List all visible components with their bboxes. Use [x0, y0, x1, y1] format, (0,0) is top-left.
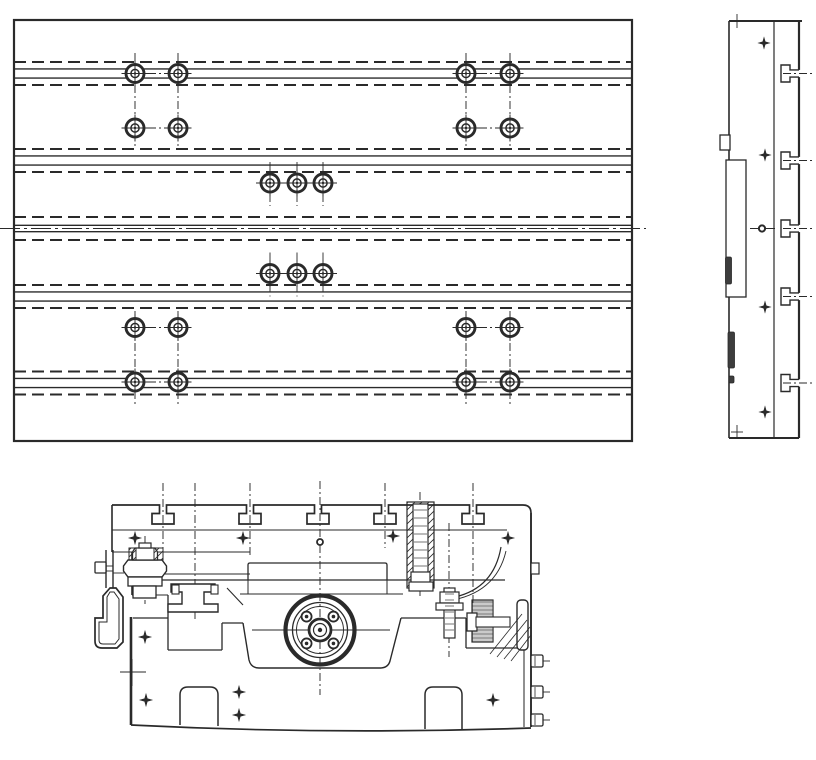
bolt-hole [122, 115, 149, 142]
bolt-hole [453, 115, 480, 142]
foot-notch-right [425, 687, 462, 729]
bolt-hole [497, 60, 524, 87]
clamp-nut-hex [124, 560, 167, 577]
side-gib-strip [729, 376, 734, 383]
flange-hub-dot [318, 628, 322, 632]
bolt-hole [453, 314, 480, 341]
apron-arc-outer [455, 547, 501, 597]
bolt-hole [453, 369, 480, 396]
center-hole [759, 225, 765, 231]
bolt-hole [497, 369, 524, 396]
bolt-hole [165, 314, 192, 341]
bolt-hole [497, 115, 524, 142]
section-bottom-edge [131, 725, 531, 731]
technical-drawing-page [0, 0, 816, 760]
bolt-hole [165, 115, 192, 142]
t-slot-band [14, 372, 632, 395]
bolt-hole [122, 369, 149, 396]
bolt-hole [257, 260, 284, 287]
hook-pin-head [95, 562, 106, 573]
h-bolt-shank [476, 617, 510, 627]
hatch-wedge-right [154, 548, 163, 560]
bolt-hole [122, 60, 149, 87]
bolt-hole [497, 314, 524, 341]
bolt-cap [139, 543, 151, 548]
vertical-bolt-washer [409, 582, 433, 591]
clamp-key-left [172, 585, 179, 594]
position-marker-icon [139, 631, 151, 643]
foot-notch-left [180, 687, 218, 726]
position-marker-icon [760, 407, 771, 418]
position-marker-icon [760, 150, 771, 161]
position-marker-icon [129, 532, 141, 544]
section-line [227, 588, 243, 605]
bolt-hole [284, 170, 311, 197]
edge-bolt [531, 714, 543, 726]
stud-washer [436, 603, 463, 610]
washer [128, 577, 162, 586]
side-gib-strip [726, 257, 732, 284]
bolt-hole [453, 60, 480, 87]
edge-bolt [531, 655, 543, 667]
section-front-view [95, 481, 550, 731]
stud-nut [440, 592, 459, 603]
edge-tab [531, 563, 539, 574]
raised-bar [248, 563, 387, 580]
position-marker-icon [233, 686, 245, 698]
position-marker-icon [759, 38, 770, 49]
position-marker-icon [233, 709, 245, 721]
bolt-hole [165, 60, 192, 87]
clamp-key-right [211, 585, 218, 594]
side-gib-strip [728, 332, 735, 368]
bolt-hole [122, 314, 149, 341]
bolt-hole [310, 260, 337, 287]
bolt-hole [257, 170, 284, 197]
small-center-hole [317, 539, 323, 545]
side-view [720, 14, 812, 439]
machine-table-drawing [0, 0, 816, 760]
bolt-hole [310, 170, 337, 197]
position-marker-icon [237, 532, 249, 544]
plan-view [0, 20, 646, 441]
bolt-hole [284, 260, 311, 287]
position-marker-icon [502, 532, 514, 544]
hatch-wedge-left [129, 548, 136, 560]
position-marker-icon [487, 694, 499, 706]
side-tab [720, 135, 730, 150]
edge-bolt [531, 686, 543, 698]
t-slot-band [14, 62, 632, 85]
position-marker-icon [387, 530, 399, 542]
position-marker-icon [760, 302, 771, 313]
bolt-hole [165, 369, 192, 396]
cylinder [133, 586, 156, 598]
section-top-outline [112, 505, 531, 524]
position-marker-icon [140, 694, 152, 706]
